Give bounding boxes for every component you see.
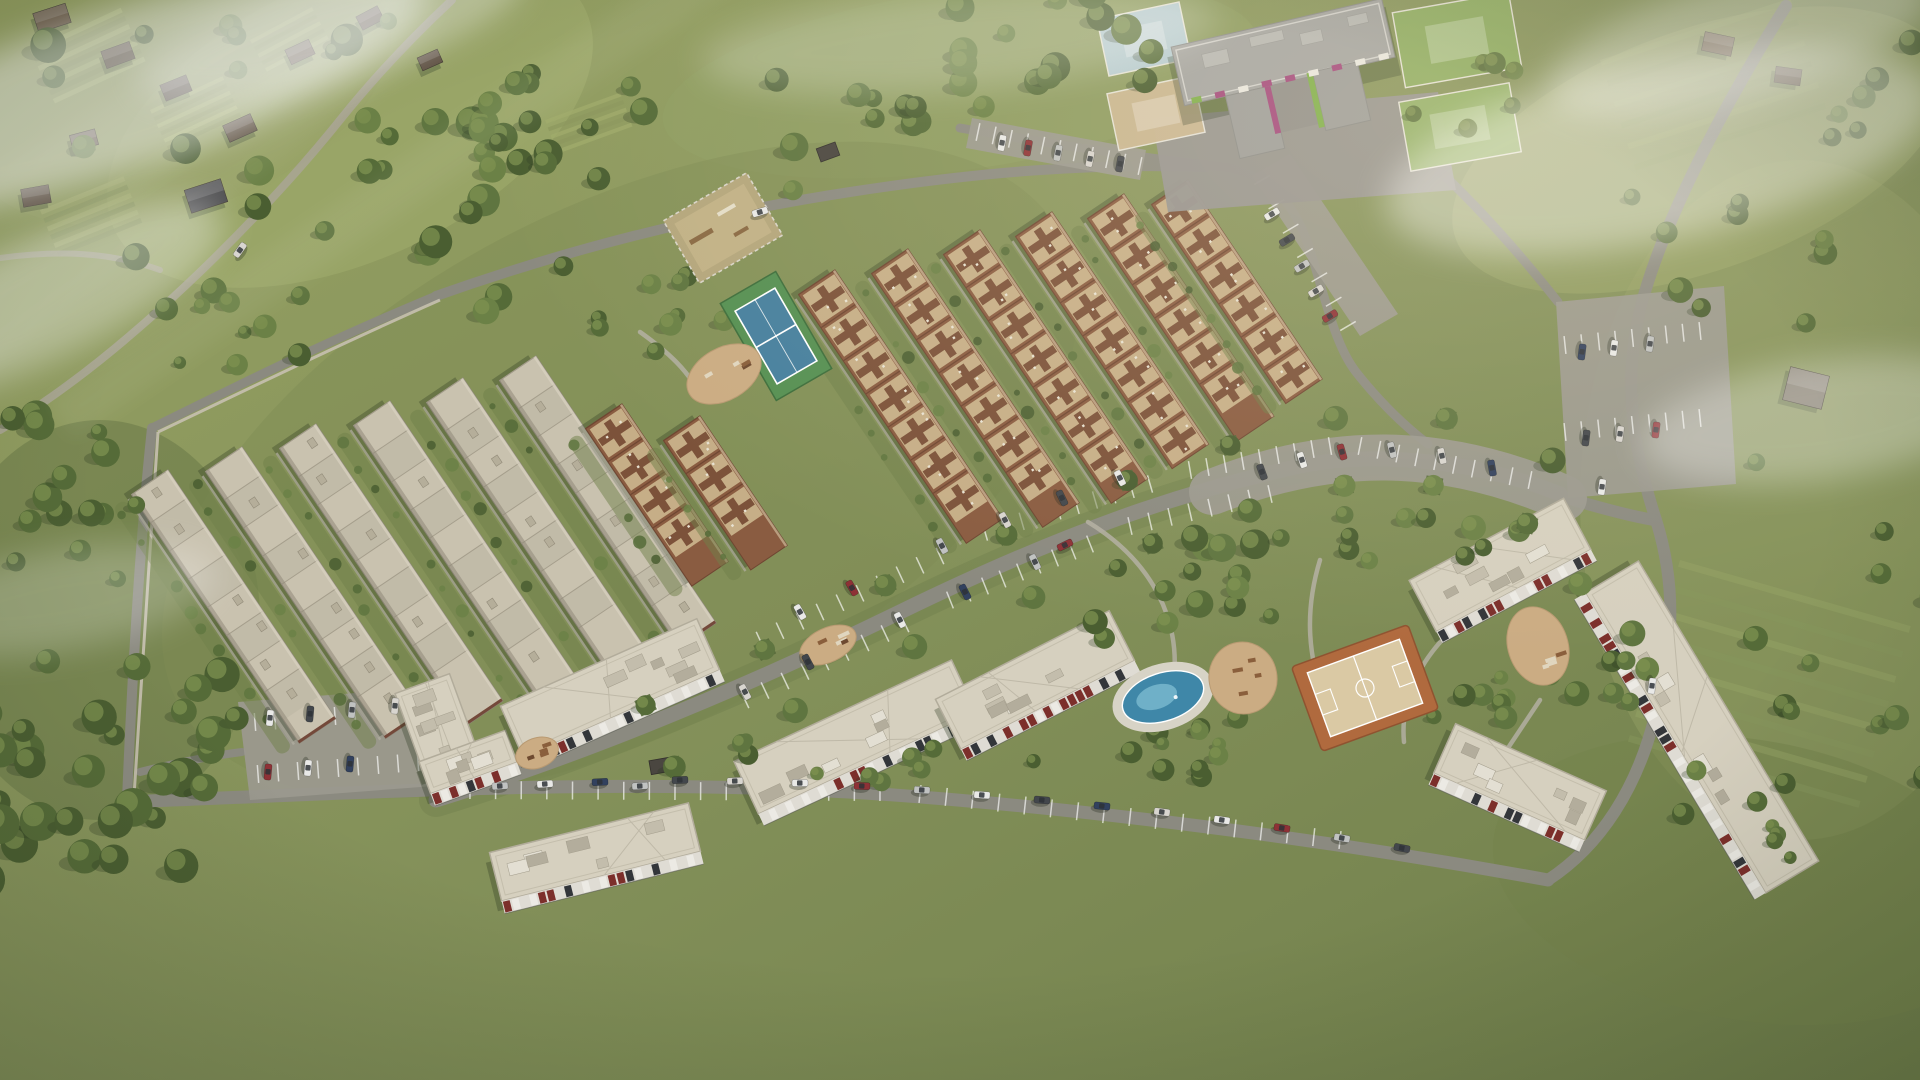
aerial-render-viewport <box>0 0 1920 1080</box>
residential-complex-aerial-render <box>0 0 1920 1080</box>
vignette <box>0 0 1920 1080</box>
atmosphere <box>0 0 1920 1080</box>
